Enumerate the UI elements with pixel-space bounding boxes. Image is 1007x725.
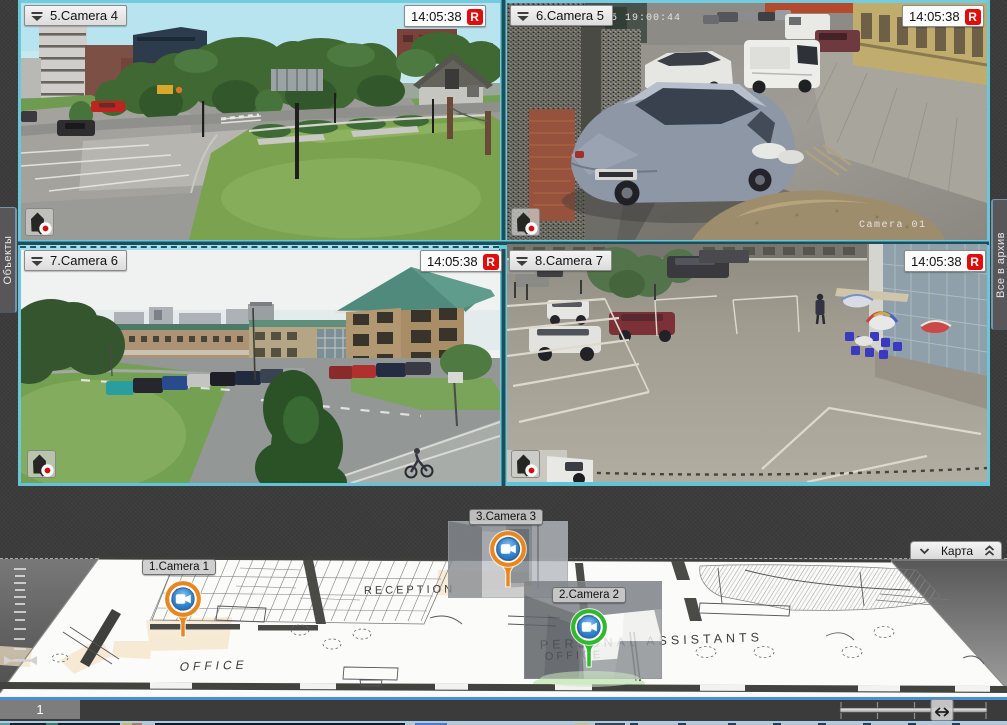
svg-text:OFFICE: OFFICE (179, 658, 249, 674)
svg-text:RECEPTION: RECEPTION (364, 583, 455, 597)
svg-text:Camera 01: Camera 01 (859, 220, 927, 231)
svg-text:5 19:00:44: 5 19:00:44 (611, 13, 681, 24)
